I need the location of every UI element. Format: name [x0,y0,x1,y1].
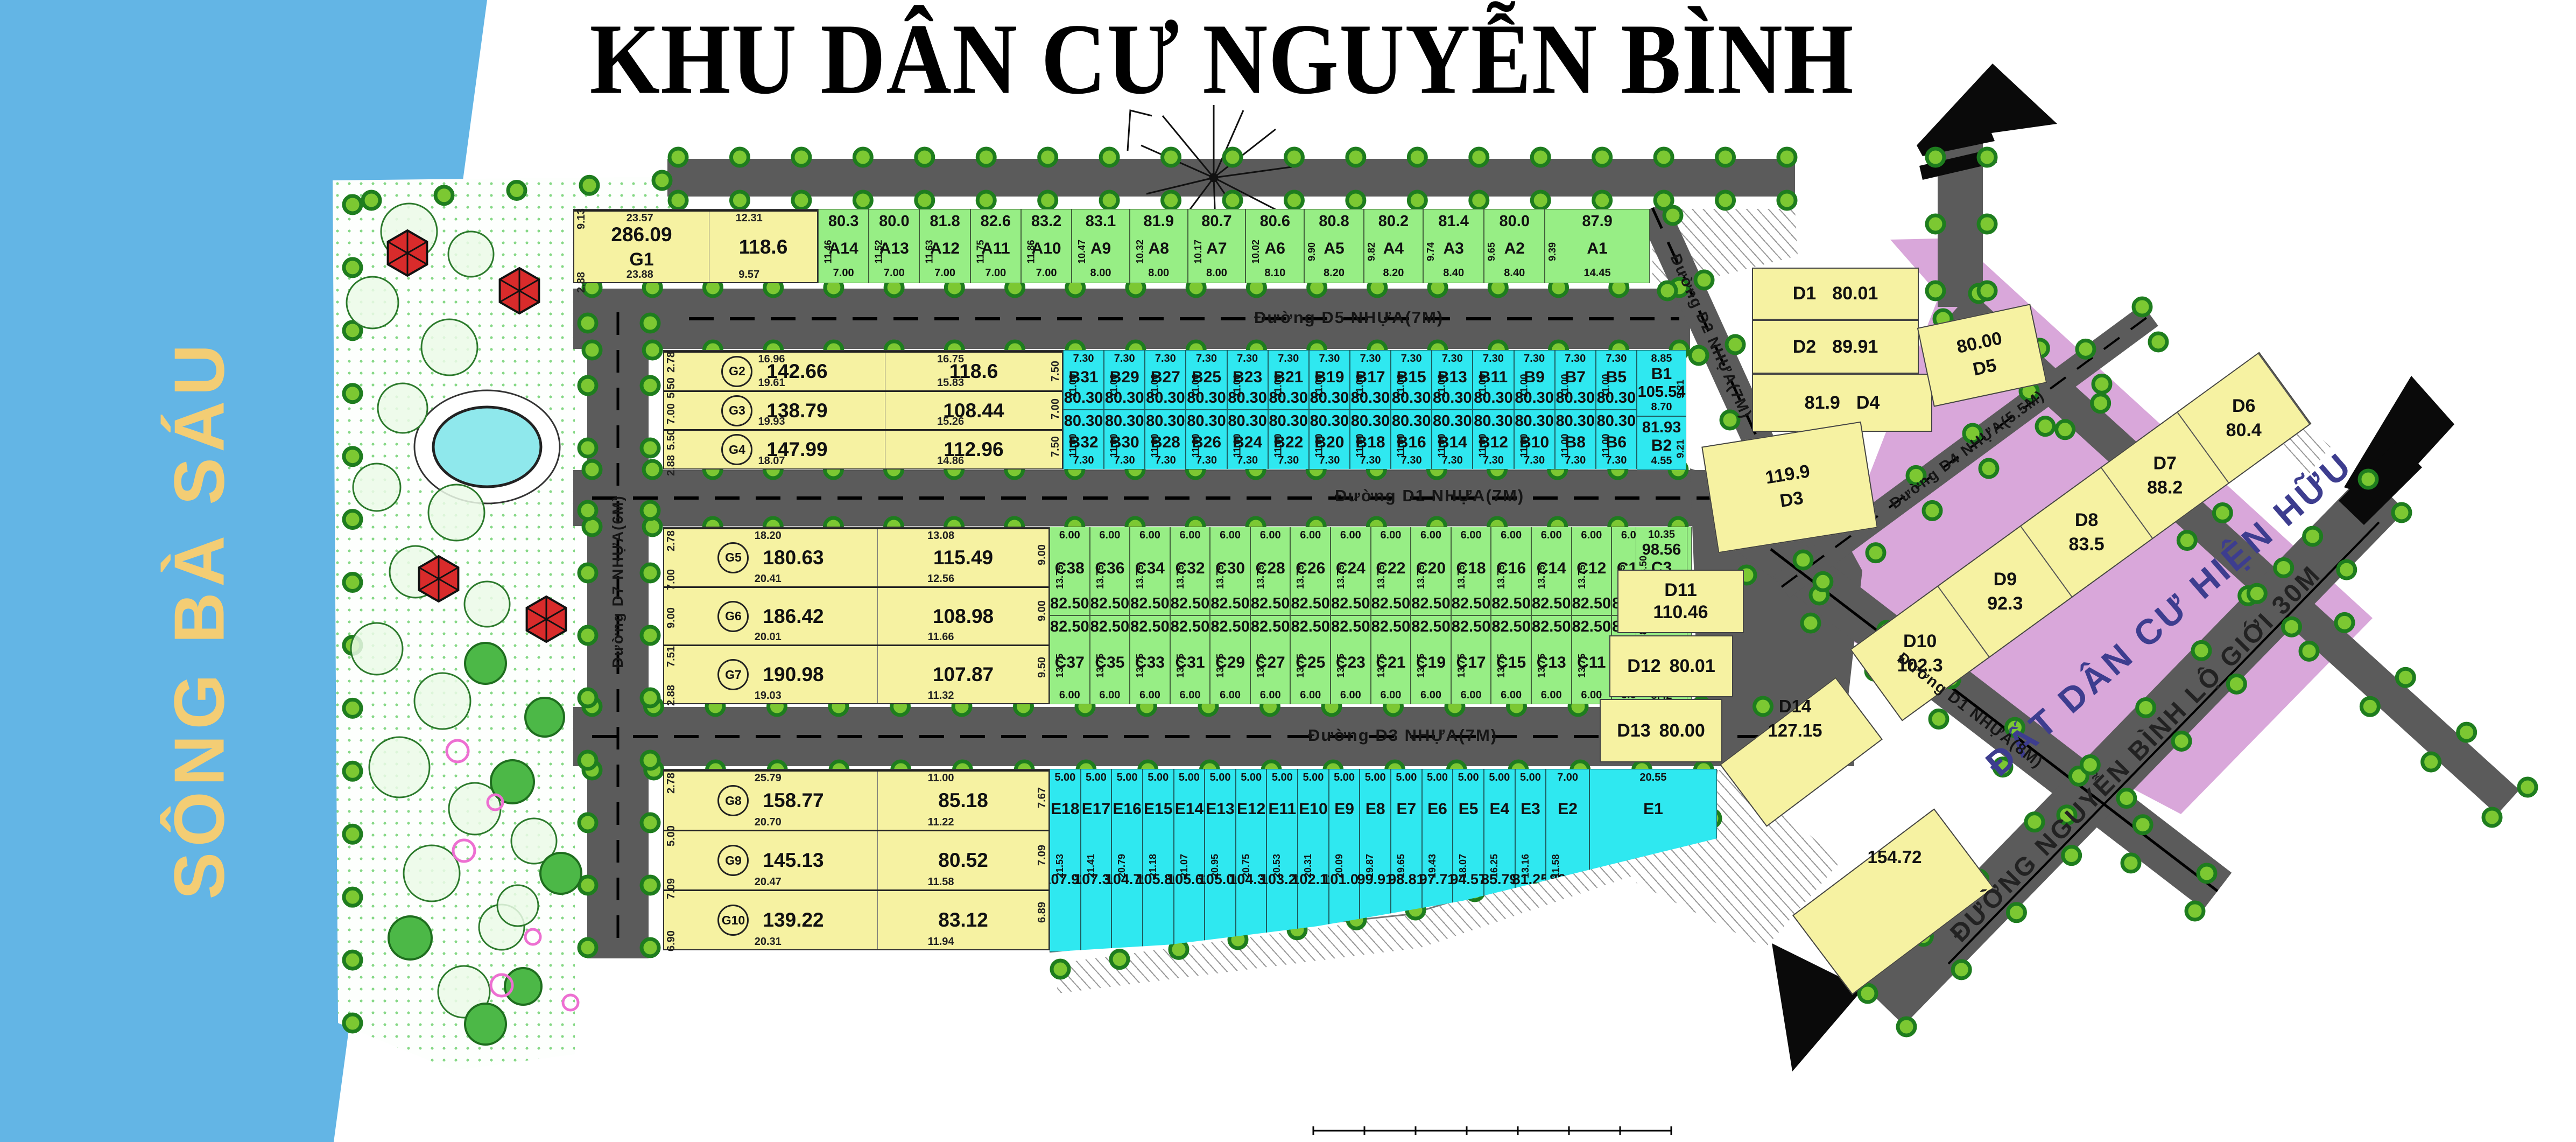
tree-icon [854,149,871,166]
tree-icon [2198,865,2215,882]
page-title: KHU DÂN CƯ NGUYỄN BÌNH [511,1,1932,117]
lot-C31: 82.50C316.0013.75 [1170,615,1210,704]
tree-icon [1285,192,1303,209]
tree-icon [583,341,601,359]
lot-C35: 82.50C356.0013.75 [1090,615,1130,704]
tree-icon [793,192,810,209]
park-tree-icon [369,737,430,797]
lot-E10: 5.00E10102.1120.31 [1298,769,1329,952]
tree-icon [1101,192,1118,209]
lot-E18: 5.00E18107.9221.53 [1050,769,1081,952]
lot-B7: 7.30B780.3011.00 [1555,350,1596,410]
lot-D11: D11110.46 [1617,570,1744,633]
lot-E11: 5.00E11103.2120.53 [1266,769,1298,952]
site-plan-map: SÔNG BÀ SÁU [0,0,2576,1142]
lot-C38: 6.00C3882.5013.75 [1050,527,1090,615]
lot-D14-label: D14127.15 [1741,695,1849,742]
tree-icon [2063,847,2080,864]
tree-icon [1778,192,1796,209]
lot-B32: 80.30B327.3011.00 [1063,410,1104,470]
lot-C18: 6.00C1882.5013.75 [1451,527,1491,615]
tree-icon [1655,149,1672,166]
tree-icon [644,341,661,359]
park-tree-icon [421,319,477,375]
lot-A11: 82.6A117.0011.75 [970,209,1021,283]
lot-E14: 5.00E14105.6321.07 [1174,769,1205,952]
tree-icon [579,877,596,894]
lot-C15: 82.50C156.0013.75 [1491,615,1531,704]
road-label-d7: Đường D7 NHỰA(6M) [609,495,627,668]
lot-B27: 7.30B2780.3011.00 [1145,350,1186,410]
tree-icon [642,564,659,581]
lot-B17: 7.30B1780.3011.00 [1350,350,1391,410]
g8-g10-block: 25.7911.00G8158.7785.1820.7011.22G9145.1… [663,769,1050,950]
tree-icon [642,877,659,894]
lot-B13: 7.30B1380.3011.00 [1432,350,1473,410]
tree-icon [977,192,995,209]
band-b: 7.30B3180.3011.007.30B2980.3011.007.30B2… [1063,350,1686,470]
lot-B2: 81.93 B2 4.55 9.21 [1637,416,1686,470]
tree-icon [344,196,361,213]
tree-icon [1953,961,1970,978]
lot-A3: 81.4A38.409.74 [1423,209,1484,283]
lot-C16: 6.00C1682.5013.75 [1491,527,1531,615]
tree-icon [1224,149,1241,166]
tree-icon [344,259,361,276]
lot-B29: 7.30B2980.3011.00 [1104,350,1145,410]
gazebo-icon [388,230,427,276]
tree-icon [2519,779,2536,796]
tree-icon [344,825,361,843]
tree-icon [579,314,596,332]
tree-icon [1664,207,1681,224]
tree-icon [1794,551,1812,569]
lot-B22: 80.30B227.3011.00 [1268,410,1309,470]
lot-C30: 6.00C3082.5013.75 [1210,527,1250,615]
playground-icon [453,840,475,861]
tree-icon [642,502,659,519]
park-trees-layer [347,204,581,1045]
lot-C20: 6.00C2082.5013.75 [1411,527,1451,615]
tree-icon [1470,149,1488,166]
pond-icon [414,390,560,503]
tree-icon [916,149,933,166]
tree-icon [1979,215,1996,233]
tree-icon [1101,149,1118,166]
lot-E17: 5.00E17107.3521.41 [1081,769,1112,952]
tree-icon [2336,614,2353,631]
lot-C33: 82.50C336.0013.75 [1130,615,1170,704]
tree-icon [344,574,361,591]
tree-icon [1980,460,1997,477]
tree-icon [1052,961,1069,978]
lot-C28: 6.00C2882.5013.75 [1250,527,1291,615]
tree-icon [2186,902,2204,920]
lot-A2: 80.0A28.409.65 [1484,209,1545,283]
lot-B20: 80.30B207.3011.00 [1309,410,1350,470]
playground-icon [525,929,540,944]
lot-154-label: 154.72 [1835,845,1954,870]
park-tree-icon [389,916,432,959]
tree-icon [977,149,995,166]
park-tree-icon [465,1004,506,1045]
tree-icon [2134,298,2151,316]
lot-C19: 82.50C196.0013.75 [1411,615,1451,704]
tree-icon [2134,816,2151,833]
lot-B16: 80.30B167.3011.00 [1391,410,1432,470]
tree-icon [916,192,933,209]
lot-B9: 7.30B980.3011.00 [1514,350,1555,410]
tree-icon [1717,192,1734,209]
tree-icon [2122,854,2139,872]
lot-A7: 80.7A78.0010.17 [1188,209,1246,283]
tree-icon [2137,699,2155,716]
tree-icon [1659,282,1676,299]
lot-D2: D289.91 [1752,320,1919,374]
lot-B15: 7.30B1580.3011.00 [1391,350,1432,410]
tree-icon [2150,333,2167,351]
tree-icon [1039,149,1057,166]
lot-C12: 6.00C1282.5013.75 [1572,527,1612,615]
tree-icon [1778,149,1796,166]
tree-icon [1285,149,1303,166]
tree-icon [2173,732,2190,749]
tree-icon [1927,149,1944,166]
tree-icon [344,762,361,780]
tree-icon [2397,669,2414,686]
tree-icon [579,752,596,769]
lot-B26: 80.30B267.3011.00 [1186,410,1227,470]
tree-icon [642,377,659,394]
tree-icon [1532,149,1549,166]
tree-icon [579,814,596,831]
lot-A14: 80.3A147.0011.46 [818,209,869,283]
lot-B21: 7.30B2180.3011.00 [1268,350,1309,410]
lot-E15: 5.00E15105.8021.18 [1143,769,1174,952]
tree-icon [2092,395,2109,412]
lot-B5: 7.30B580.3011.00 [1596,350,1637,410]
lot-D13: D1380.00 [1600,699,1722,762]
tree-icon [1347,192,1364,209]
park-tree-icon [497,885,538,926]
tree-icon [2077,340,2094,358]
tree-icon [1347,149,1364,166]
lot-B12: 80.30B127.3011.00 [1473,410,1514,470]
gazebo-icon [419,556,459,601]
g2-g4-block: 16.9616.75G2142.66118.619.6115.83G3138.7… [663,350,1063,470]
gazebo-icon [500,268,539,313]
tree-icon [579,689,596,706]
tree-icon [2037,418,2054,435]
park-tree-icon [428,485,484,541]
tree-icon [2360,471,2377,488]
tree-icon [644,461,661,478]
park-tree-icon [465,643,506,684]
park-tree-icon [448,232,494,277]
tree-icon [2093,375,2110,393]
g1-block: 23.5712.31286.09G1118.623.889.579.132.88 [573,209,818,283]
tree-icon [344,699,361,717]
tree-icon [344,951,361,969]
lot-E16: 5.00E16104.7920.79 [1111,769,1143,952]
road-label-d3: Đường D3 NHỰA(7M) [1308,726,1497,745]
road-label-d5: Đường D5 NHỰA(7M) [1254,308,1444,327]
tree-icon [1224,192,1241,209]
lot-A9: 83.1A98.0010.47 [1072,209,1130,283]
lot-C23: 82.50C236.0013.75 [1331,615,1371,704]
tree-icon [670,192,687,209]
tree-icon [2248,585,2265,602]
tree-icon [2193,642,2210,659]
park-tree-icon [491,760,534,803]
lot-A1: 87.9A114.459.39 [1545,209,1650,283]
tree-icon [1532,192,1549,209]
tree-icon [344,511,361,528]
tree-icon [1163,192,1180,209]
tree-icon [1470,192,1488,209]
tree-icon [363,192,380,209]
lot-C22: 6.00C2282.5013.75 [1371,527,1411,615]
tree-icon [1867,544,1884,562]
tree-icon [1979,282,1996,299]
tree-icon [653,172,671,189]
tree-icon [2304,528,2321,545]
tree-icon [2118,790,2135,807]
tree-icon [2483,809,2501,826]
tree-icon [1924,502,1941,519]
tree-icon [793,149,810,166]
lot-B6: 80.30B67.3011.00 [1596,410,1637,470]
band-c: 6.00C3882.5013.756.00C3682.5013.756.00C3… [1050,527,1687,704]
tree-icon [2026,814,2043,831]
lot-C34: 6.00C3482.5013.75 [1130,527,1170,615]
tree-icon [579,502,596,519]
lot-B14: 80.30B147.3011.00 [1432,410,1473,470]
park-tree-icon [540,853,581,894]
tree-icon [2458,724,2475,741]
tree-icon [1717,149,1734,166]
tree-icon [2008,904,2025,921]
lot-C36: 6.00C3682.5013.75 [1090,527,1130,615]
tree-icon [642,314,659,332]
tree-icon [1409,149,1426,166]
tree-icon [2300,642,2318,660]
tree-icon [583,461,601,478]
lot-C17: 82.50C176.0013.75 [1451,615,1491,704]
lot-A5: 80.8A58.209.90 [1304,209,1363,283]
lot-A4: 80.2A48.209.82 [1364,209,1423,283]
lot-C27: 82.50C276.0013.75 [1250,615,1291,704]
lot-B25: 7.30B2580.3011.00 [1186,350,1227,410]
tree-icon [579,939,596,956]
lot-A13: 80.0A137.0011.52 [869,209,919,283]
park-tree-icon [353,464,400,511]
tree-icon [344,888,361,906]
lot-B30: 80.30B307.3011.00 [1104,410,1145,470]
tree-icon [1039,192,1057,209]
lot-D12: D1280.01 [1609,635,1733,697]
tree-icon [1727,336,1744,353]
lot-A12: 81.8A127.0011.63 [919,209,970,283]
tree-icon [2178,532,2195,549]
tree-icon [1163,149,1180,166]
tree-icon [1898,1018,1915,1035]
lot-B19: 7.30B1980.3011.00 [1309,350,1350,410]
lot-B28: 80.30B287.3011.00 [1145,410,1186,470]
tree-icon [642,939,659,956]
tree-icon [2057,421,2074,438]
tree-icon [1927,215,1944,233]
g5-g7-block: 18.2013.08G5180.63115.4920.4112.56G6186.… [663,527,1050,704]
tree-icon [1979,149,1996,166]
tree-icon [1690,347,1707,364]
lot-C37: 82.50C376.0013.75 [1050,615,1090,704]
playground-icon [447,740,468,762]
tree-icon [2275,559,2292,576]
tree-icon [1409,192,1426,209]
lot-C25: 82.50C256.0013.75 [1290,615,1331,704]
lot-C24: 6.00C2482.5013.75 [1331,527,1371,615]
tree-icon [579,564,596,581]
lot-C21: 82.50C216.0013.75 [1371,615,1411,704]
tree-icon [2361,698,2378,715]
park-tree-icon [404,845,460,901]
lot-B24: 80.30B247.3011.00 [1227,410,1268,470]
lot-B10: 80.30B107.3011.00 [1514,410,1555,470]
tree-icon [2338,561,2355,578]
tree-icon [1695,271,1713,289]
lot-B11: 7.30B1180.3011.00 [1473,350,1514,410]
tree-icon [642,439,659,457]
lot-C29: 82.50C296.0013.75 [1210,615,1250,704]
lot-B1: 8.85 B1 105.54 8.70 9.21 [1637,350,1686,416]
tree-icon [1802,614,1819,632]
tree-icon [642,627,659,644]
tree-icon [435,187,453,204]
tree-icon [642,689,659,706]
lot-D4: 81.9D4 [1752,374,1932,432]
tree-icon [854,192,871,209]
tree-icon [1594,192,1611,209]
lot-A6: 80.6A68.1010.02 [1245,209,1304,283]
lot-B31: 7.30B3180.3011.00 [1063,350,1104,410]
tree-icon [2393,504,2410,521]
tree-icon [579,439,596,457]
tree-icon [508,182,525,199]
lot-C11: 82.50C116.0013.75 [1572,615,1612,704]
lot-B8: 80.30B87.3011.00 [1555,410,1596,470]
tree-icon [642,814,659,831]
lot-C13: 82.50C136.0013.75 [1531,615,1572,704]
tree-icon [642,752,659,769]
tree-icon [1930,710,1947,727]
tree-icon [731,149,748,166]
lot-C14: 6.00C1482.5013.75 [1531,527,1572,615]
tree-icon [1927,282,1944,299]
lot-B23: 7.30B2380.3011.00 [1227,350,1268,410]
lot-D1: D180.01 [1752,268,1919,320]
tree-icon [670,149,687,166]
park-tree-icon [351,623,403,675]
tree-icon [1814,573,1832,590]
tree-icon [581,177,598,194]
lot-E13: 5.00E13105.0620.95 [1205,769,1236,952]
tree-icon [1594,149,1611,166]
park-tree-icon [505,968,541,1005]
playground-icon [563,995,578,1010]
tree-icon [2214,505,2231,522]
lot-C26: 6.00C2682.5013.75 [1290,527,1331,615]
park-tree-icon [525,698,564,737]
park-tree-icon [347,277,398,328]
tree-icon [344,1014,361,1032]
tree-icon [344,385,361,402]
tree-icon [579,377,596,394]
tree-icon [731,192,748,209]
lot-A8: 81.9A88.0010.32 [1130,209,1188,283]
tree-icon [344,448,361,465]
lot-E12: 5.00E12104.3020.75 [1236,769,1267,952]
tree-icon [2081,756,2099,774]
park-tree-icon [414,673,470,729]
park-tree-icon [378,383,427,433]
tree-icon [2423,753,2440,770]
tree-icon [579,627,596,644]
band-a: 80.3A147.0011.4680.0A137.0011.5281.8A127… [818,209,1650,283]
park-tree-icon [464,581,510,627]
lot-C32: 6.00C3282.5013.75 [1170,527,1210,615]
gazebo-icon [527,597,566,642]
scale-bar [1313,1126,1671,1135]
road-label-d1-7m: Đường D1 NHỰA(7M) [1335,486,1524,506]
lot-A10: 83.2A107.0011.86 [1021,209,1072,283]
tree-icon [1111,951,1128,968]
lot-B18: 80.30B187.3011.00 [1350,410,1391,470]
